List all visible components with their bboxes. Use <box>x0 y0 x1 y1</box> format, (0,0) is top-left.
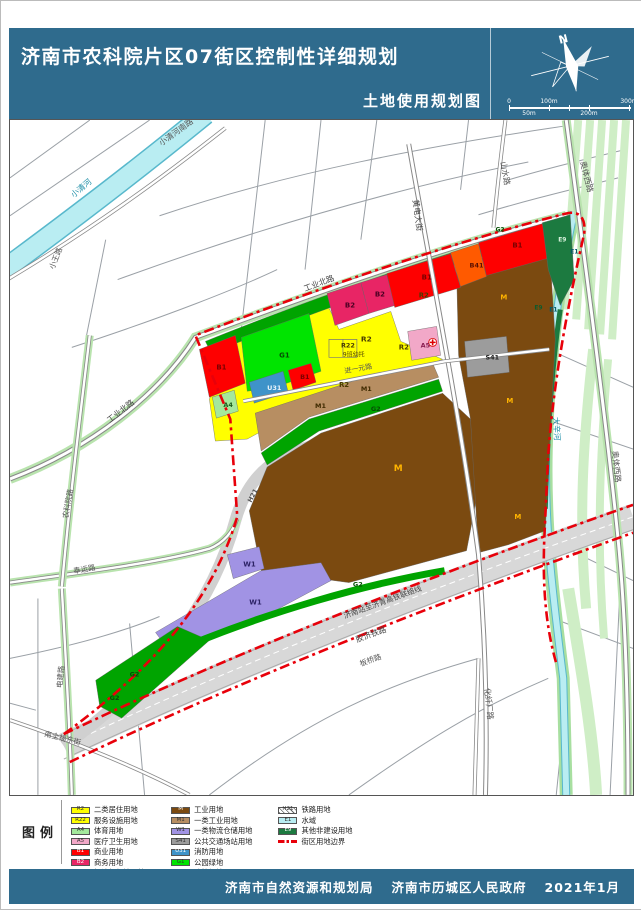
parcel-label: R2 <box>339 381 349 389</box>
parcel-label: W1 <box>249 599 262 607</box>
legend-item: H21铁路用地 <box>278 806 352 814</box>
legend-label: 消防用地 <box>194 847 223 857</box>
parcel-label: E1 <box>570 249 578 256</box>
legend-label: 服务设施用地 <box>94 816 138 826</box>
header: 济南市农科院片区07街区控制性详细规划 土地使用规划图 N 0100m300m5… <box>9 28 634 119</box>
parcel-label: W1 <box>243 561 256 569</box>
legend-item: R22服务设施用地 <box>71 817 145 825</box>
parcel-label: M <box>506 397 513 405</box>
legend-item: U31消防用地 <box>171 848 252 856</box>
parcel-label: M <box>394 464 403 474</box>
parcel-label: E9 <box>534 304 542 311</box>
legend-swatch: R22 <box>71 817 90 824</box>
parcel-label: E9 <box>558 237 566 244</box>
map-label: 山水路 <box>498 161 512 186</box>
scale-label: 50m <box>522 110 535 117</box>
legend-swatch: H21 <box>278 807 297 814</box>
map-shape <box>582 349 593 608</box>
map-shape <box>610 589 620 795</box>
map-label: 黄电大街 <box>411 199 425 232</box>
legend-swatch: A5 <box>71 838 90 845</box>
legend-label: 街区用地边界 <box>301 837 345 847</box>
land-use-map: 小清河南路小清河小王路工业北路工业北路山水路黄电大街奥体西路奥体西路大辛河农科院… <box>9 119 634 796</box>
parcel-label: G2 <box>353 581 363 589</box>
legend-item: R2二类居住用地 <box>71 806 145 814</box>
map-shape <box>10 519 237 583</box>
legend-swatch: A4 <box>71 828 90 835</box>
scale-tick <box>569 105 570 111</box>
footer-date: 2021年1月 <box>545 877 621 896</box>
legend-label: 商业用地 <box>94 847 123 857</box>
legend-swatch: W1 <box>171 828 190 835</box>
legend-swatch: B2 <box>71 859 90 866</box>
legend-boundary-line <box>278 840 297 843</box>
legend-label: 体育用地 <box>94 826 123 836</box>
scale-bar: 0100m300m50m200m <box>509 100 631 116</box>
parcel-label: G2 <box>130 670 140 678</box>
parcel-label: R22 <box>341 341 355 349</box>
header-divider <box>490 28 491 119</box>
page-title: 济南市农科院片区07街区控制性详细规划 <box>21 42 399 69</box>
plan-sheet: 济南市农科院片区07街区控制性详细规划 土地使用规划图 N 0100m300m5… <box>0 0 641 910</box>
map-canvas: 小清河南路小清河小王路工业北路工业北路山水路黄电大街奥体西路奥体西路大辛河农科院… <box>10 120 633 795</box>
parcel-label: B1 <box>512 242 522 250</box>
map-shape <box>349 678 548 795</box>
legend-item: B2商务用地 <box>71 859 145 867</box>
map-shape <box>209 658 478 795</box>
parcel-label: M <box>500 294 507 302</box>
parcel-label: R2 <box>419 292 429 300</box>
parcel-label: M1 <box>361 385 372 393</box>
legend-item: M工业用地 <box>171 806 252 814</box>
legend-label: 二类居住用地 <box>94 805 138 815</box>
compass-north-arrow: N <box>514 30 626 94</box>
legend: 图例 R2二类居住用地R22服务设施用地A4体育用地A5医疗卫生用地B1商业用地… <box>9 796 634 869</box>
legend-swatch: M <box>171 807 190 814</box>
legend-title: 图例 <box>22 822 58 841</box>
map-label: 板桥路 <box>358 651 383 668</box>
map-label: 大辛河 <box>551 417 562 441</box>
scale-label: 100m <box>540 98 557 105</box>
parcel-label: G2 <box>110 694 120 702</box>
parcel-label: E1 <box>549 306 557 313</box>
legend-label: 商务用地 <box>94 858 123 868</box>
map-subtitle: 土地使用规划图 <box>363 90 482 111</box>
map-shape <box>305 120 321 270</box>
legend-label: 公共交通场站用地 <box>194 837 252 847</box>
parcel-label: M1 <box>315 402 326 410</box>
parcel-label: B2 <box>345 301 355 309</box>
legend-item: E9其他非建设用地 <box>278 827 352 835</box>
map-label: 奥体西路 <box>578 160 595 193</box>
legend-swatch: S41 <box>171 838 190 845</box>
parcel-label: R2 <box>361 334 372 343</box>
scale-label: 300m <box>620 98 637 105</box>
legend-label: 工业用地 <box>194 805 223 815</box>
map-shape <box>62 335 90 586</box>
parcel-label: S41 <box>485 353 499 361</box>
scale-label: 200m <box>580 110 597 117</box>
legend-label: 铁路用地 <box>301 805 330 815</box>
legend-swatch: U31 <box>171 849 190 856</box>
map-shape <box>461 120 469 190</box>
parcel-label: B1 <box>216 363 226 371</box>
map-shape <box>10 120 205 270</box>
map-label: 9班幼托 <box>343 350 365 358</box>
scale-label: 0 <box>507 98 511 105</box>
map-shape <box>86 240 106 340</box>
parcel-label: A5 <box>421 341 431 349</box>
map-shape <box>568 589 596 795</box>
parcel-label: U31 <box>267 384 282 392</box>
footer-agency2: 济南市历城区人民政府 <box>391 877 526 896</box>
scale-tick <box>549 105 550 111</box>
legend-item: E1水域 <box>278 817 352 825</box>
legend-label: 一类物流仓储用地 <box>194 826 252 836</box>
parcel-label: M <box>514 513 521 521</box>
footer: 济南市自然资源和规划局 济南市历城区人民政府 2021年1月 <box>9 869 634 904</box>
legend-item: A5医疗卫生用地 <box>71 838 145 846</box>
scale-tick <box>509 105 510 111</box>
parcel-label: G1 <box>279 351 290 359</box>
map-shape <box>10 703 36 710</box>
legend-swatch: R2 <box>71 807 90 814</box>
legend-column: M工业用地M1一类工业用地W1一类物流仓储用地S41公共交通场站用地U31消防用… <box>171 806 252 877</box>
parcel-label: G2 <box>495 227 504 234</box>
legend-swatch: B1 <box>71 849 90 856</box>
legend-swatch: M1 <box>171 817 190 824</box>
legend-item: G1公园绿地 <box>171 859 252 867</box>
legend-swatch: E9 <box>278 828 297 835</box>
legend-swatch: E1 <box>278 817 297 824</box>
parcel-label: A4 <box>223 401 233 409</box>
parcel-label: B1 <box>300 373 310 381</box>
footer-agency1: 济南市自然资源和规划局 <box>225 877 374 896</box>
legend-item: A4体育用地 <box>71 827 145 835</box>
parcel-label: B2 <box>375 291 385 299</box>
legend-item: S41公共交通场站用地 <box>171 838 252 846</box>
legend-swatch: G1 <box>171 859 190 866</box>
scale-tick <box>629 105 630 111</box>
scale-line <box>509 107 631 109</box>
legend-item: W1一类物流仓储用地 <box>171 827 252 835</box>
legend-item: B1商业用地 <box>71 848 145 856</box>
map-shape <box>241 120 265 329</box>
legend-item: 街区用地边界 <box>278 838 352 846</box>
legend-label: 医疗卫生用地 <box>94 837 138 847</box>
parcel-label: G2 <box>371 405 381 413</box>
map-shape <box>361 120 377 240</box>
map-shape <box>508 150 623 180</box>
legend-column: H21铁路用地E1水域E9其他非建设用地街区用地边界 <box>278 806 352 877</box>
legend-label: 公园绿地 <box>194 858 223 868</box>
legend-column: R2二类居住用地R22服务设施用地A4体育用地A5医疗卫生用地B1商业用地B2商… <box>71 806 145 877</box>
map-shape <box>10 616 160 658</box>
legend-item: M1一类工业用地 <box>171 817 252 825</box>
legend-divider <box>61 800 62 864</box>
parcel-label: B1 <box>422 274 432 282</box>
legend-columns: R2二类居住用地R22服务设施用地A4体育用地A5医疗卫生用地B1商业用地B2商… <box>71 806 353 877</box>
legend-label: 水域 <box>301 816 316 826</box>
legend-label: 一类工业用地 <box>194 816 238 826</box>
parcel-label: B41 <box>470 262 484 270</box>
parcel-label: R2 <box>399 343 409 351</box>
legend-label: 其他非建设用地 <box>301 826 352 836</box>
